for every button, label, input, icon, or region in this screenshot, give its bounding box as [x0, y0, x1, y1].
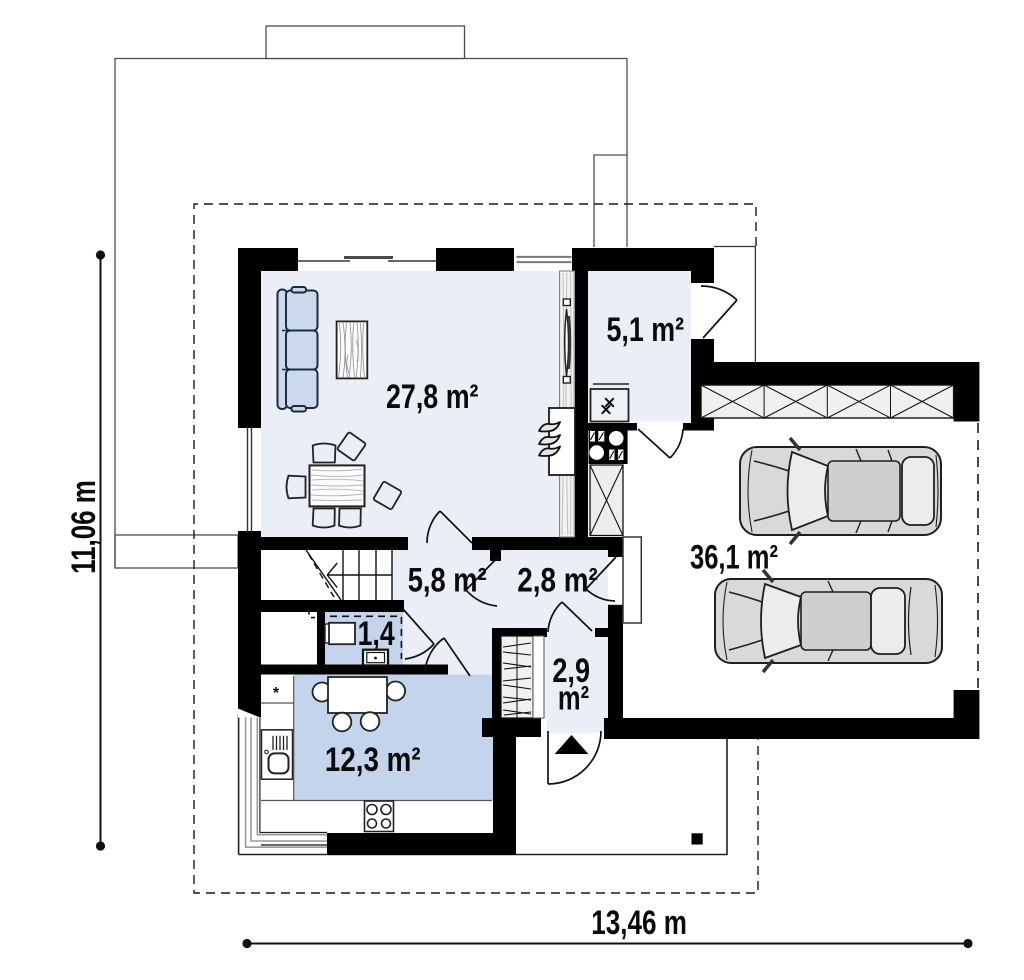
- svg-text:2,8 m²: 2,8 m²: [517, 562, 598, 600]
- svg-text:m²: m²: [558, 680, 589, 718]
- svg-text:13,46 m: 13,46 m: [591, 904, 687, 942]
- svg-text:36,1 m²: 36,1 m²: [690, 539, 778, 577]
- svg-text:1,4: 1,4: [358, 615, 395, 653]
- svg-text:12,3 m²: 12,3 m²: [325, 741, 421, 779]
- svg-text:5,8 m²: 5,8 m²: [408, 562, 487, 600]
- svg-text:11,06 m: 11,06 m: [65, 480, 103, 574]
- svg-text:5,1 m²: 5,1 m²: [607, 311, 685, 349]
- svg-text:27,8 m²: 27,8 m²: [386, 378, 479, 416]
- svg-text:*: *: [273, 685, 280, 702]
